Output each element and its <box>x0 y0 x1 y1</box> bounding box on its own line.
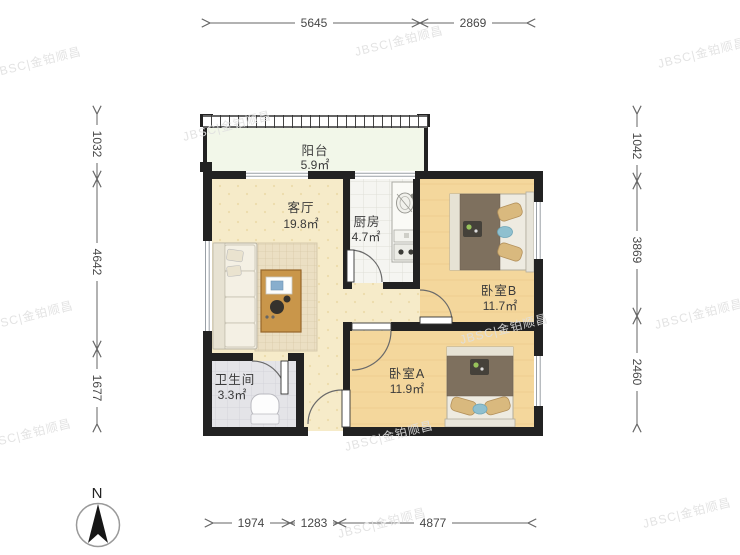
dim-top-2: 2869 <box>460 16 487 30</box>
bedroom-a-window <box>534 352 543 410</box>
dim-top-1: 5645 <box>301 16 328 30</box>
watermark-text: JBSC|金铂顺昌 <box>0 297 75 334</box>
compass: N <box>77 485 120 547</box>
room-name-bathroom: 卫生间 <box>215 373 256 387</box>
cabinet-knob <box>404 233 409 238</box>
balcony-sliding-door <box>246 171 308 179</box>
north-label: N <box>92 485 103 502</box>
room-area-kitchen: 4.7㎡ <box>352 230 381 244</box>
watermark-text: JBSC|金铂顺昌 <box>0 415 73 452</box>
bed-a <box>445 347 515 427</box>
watermark-text: JBSC|金铂顺昌 <box>653 295 740 332</box>
dim-left-3: 1677 <box>90 375 104 402</box>
toilet <box>251 394 279 424</box>
room-area-living: 19.8㎡ <box>283 217 318 231</box>
room-area-bedroom-b: 11.7㎡ <box>483 299 517 313</box>
room-name-bedroom-b: 卧室B <box>481 283 517 298</box>
watermark-text: JBSC|金铂顺昌 <box>353 22 445 59</box>
living-room-furniture <box>213 243 317 351</box>
room-name-balcony: 阳台 <box>301 143 328 158</box>
kitchen-window <box>352 171 418 179</box>
room-area-bedroom-a: 11.9㎡ <box>390 382 424 396</box>
dim-bottom-1: 1974 <box>238 516 265 530</box>
dim-right-1: 1042 <box>630 133 644 160</box>
room-name-bedroom-a: 卧室A <box>389 366 425 381</box>
floor-plan-svg: 阳台 5.9㎡ 客厅 19.8㎡ 厨房 4.7㎡ 卧室B 11.7㎡ 卧室A 1… <box>0 0 740 555</box>
room-name-kitchen: 厨房 <box>353 214 380 229</box>
room-area-bathroom: 3.3㎡ <box>218 388 247 402</box>
room-name-living: 客厅 <box>287 200 314 215</box>
watermark-text: JBSC|金铂顺昌 <box>0 43 83 80</box>
watermark-text: JBSC|金铂顺昌 <box>656 34 740 71</box>
dim-bottom-2: 1283 <box>301 516 328 530</box>
watermark-text: JBSC|金铂顺昌 <box>641 494 733 531</box>
living-window <box>203 237 212 335</box>
dim-right-3: 2460 <box>630 359 644 386</box>
floorplan-image: 阳台 5.9㎡ 客厅 19.8㎡ 厨房 4.7㎡ 卧室B 11.7㎡ 卧室A 1… <box>0 0 740 555</box>
bathroom-furniture <box>251 394 279 424</box>
bedroom-b-window <box>534 198 543 263</box>
room-area-balcony: 5.9㎡ <box>301 158 330 172</box>
dim-right-2: 3869 <box>630 237 644 264</box>
dim-left-2: 4642 <box>90 249 104 276</box>
dim-left-1: 1032 <box>90 131 104 158</box>
coffee-table <box>261 270 301 332</box>
sofa <box>213 243 257 349</box>
bed-b <box>450 192 534 272</box>
